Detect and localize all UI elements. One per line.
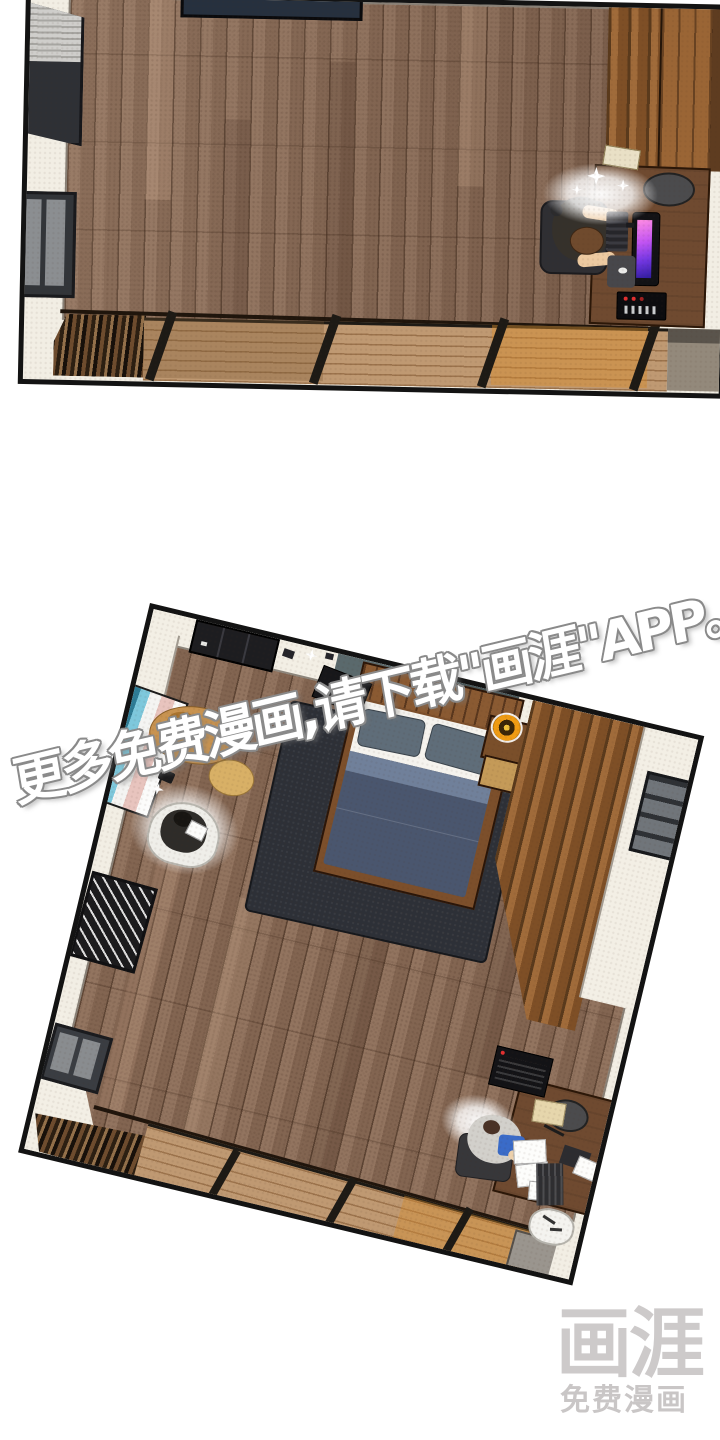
app-logo-title: 画涯 <box>556 1306 702 1382</box>
dresser-knob <box>201 641 208 646</box>
heater-slats <box>495 1055 547 1090</box>
closet-grain <box>659 8 720 180</box>
entry-mat-amber <box>491 325 648 388</box>
comic-page: 更多免费漫画,请下载"画涯"APP。 画涯 免费漫画 <box>0 0 720 1440</box>
window-blinds-top-left <box>18 0 85 146</box>
mouse <box>618 267 627 273</box>
monitor-screen <box>636 220 652 278</box>
console-led <box>640 297 644 301</box>
duvet-seam <box>336 807 478 842</box>
dresser-seam <box>216 628 225 658</box>
console-led <box>624 297 628 301</box>
app-logo-subtitle: 免费漫画 <box>560 1386 702 1416</box>
slat-chair <box>536 1163 563 1205</box>
sparkle-glow <box>542 162 658 226</box>
bag-strap <box>550 1228 562 1232</box>
window-pane <box>45 199 66 285</box>
striped-doormat <box>53 314 146 378</box>
step-shadow <box>668 329 720 345</box>
floor-paper <box>513 1139 547 1164</box>
floor-plank-light <box>457 6 487 187</box>
console-led <box>632 297 636 301</box>
comic-panel-1 <box>18 0 720 399</box>
console-vents <box>624 306 658 315</box>
floor-plank-light <box>145 0 175 200</box>
dresser-seam <box>242 634 251 664</box>
floor-plank-dark <box>220 119 250 322</box>
closet <box>657 8 720 182</box>
game-console <box>616 291 667 320</box>
heater-led <box>500 1050 505 1055</box>
floor-plank-dark <box>324 61 355 323</box>
window-left <box>18 191 77 298</box>
mouse-pad <box>607 255 636 288</box>
window-pane <box>73 1038 101 1079</box>
entry-step-gray <box>667 329 720 393</box>
window-pane <box>21 199 42 285</box>
bag-strap <box>542 1215 555 1225</box>
app-logo: 画涯 免费漫画 <box>556 1306 702 1416</box>
